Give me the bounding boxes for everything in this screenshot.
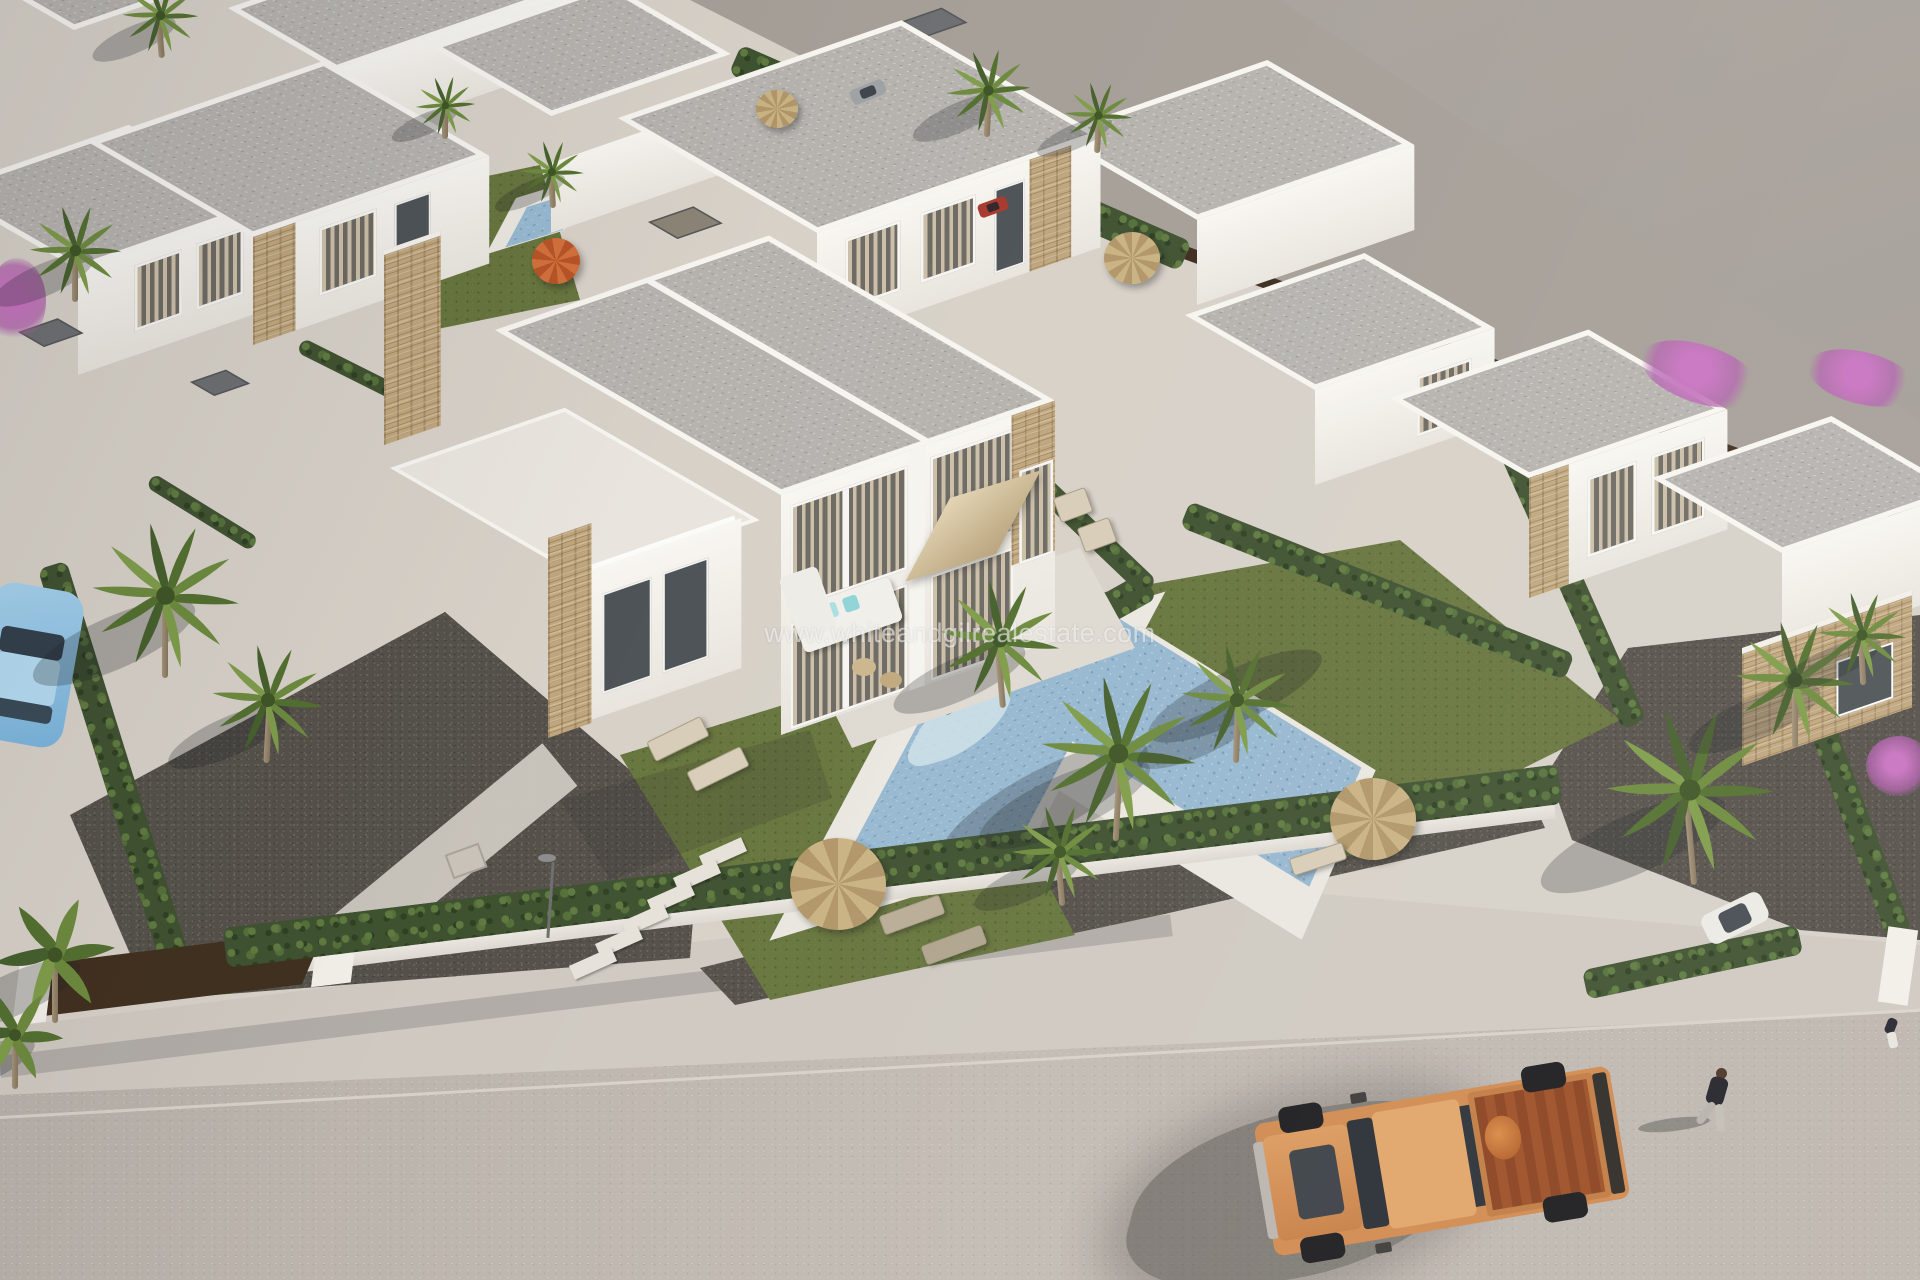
palm-crown <box>1056 73 1141 158</box>
stone-clad-pier <box>1030 145 1072 271</box>
car-glass <box>859 84 878 99</box>
palm-tree <box>113 0 208 63</box>
palm-tree <box>1000 792 1120 912</box>
palm-crown <box>512 132 592 212</box>
window <box>921 194 976 283</box>
rooftop-chimney <box>190 370 250 396</box>
palm-tree <box>18 193 133 308</box>
street-lamp-head <box>538 854 556 862</box>
truck-mirror <box>1350 1092 1367 1105</box>
wing-window <box>602 577 651 694</box>
pedestrian-leg <box>1715 1104 1726 1133</box>
aerial-render-scene: www.whiteandgilrealestate.com <box>0 0 1920 1280</box>
pouf-table <box>852 658 876 676</box>
hero-stone-pier <box>548 523 591 738</box>
palm-crown <box>113 0 208 63</box>
watermark: www.whiteandgilrealestate.com <box>764 618 1155 649</box>
window-mullion <box>842 489 849 589</box>
palm-tree <box>1807 580 1917 690</box>
truck-bed <box>1467 1072 1612 1217</box>
window <box>196 228 243 310</box>
palm-crown <box>408 68 483 143</box>
thatched-parasol <box>756 90 798 128</box>
window <box>319 208 377 296</box>
palm-tree <box>1056 73 1141 158</box>
palm-crown <box>198 630 338 770</box>
entry-door <box>995 179 1025 273</box>
pedestrian-leg <box>1886 1031 1898 1049</box>
pedestrian-small <box>1882 1018 1904 1054</box>
palm-tree <box>198 630 338 770</box>
hero-stone-chimney-wall <box>384 230 441 445</box>
pedestrian-leg <box>1695 1100 1717 1125</box>
car-glass <box>986 201 1000 213</box>
palm-crown <box>1167 630 1307 770</box>
cushion <box>841 594 860 613</box>
palm-tree <box>936 38 1041 143</box>
palm-tree <box>408 68 483 143</box>
palm-crown <box>0 975 75 1095</box>
window <box>1588 461 1637 558</box>
stone-clad-pier <box>1529 464 1569 598</box>
thatched-parasol <box>1104 232 1160 284</box>
pouf-table <box>880 672 902 688</box>
orange-parasol <box>532 238 580 284</box>
thatched-parasol <box>790 838 886 930</box>
palm-tree <box>512 132 592 212</box>
pedestrian <box>1698 1068 1742 1142</box>
palm-crown <box>936 38 1041 143</box>
banana-plant <box>0 975 75 1095</box>
wing-door <box>663 557 708 673</box>
palm-tree <box>1167 630 1307 770</box>
palm-crown <box>1000 792 1120 912</box>
window <box>135 249 182 331</box>
rooftop-chimney <box>648 206 723 239</box>
palm-crown <box>1807 580 1917 690</box>
stone-clad-pier <box>253 222 296 345</box>
palm-crown <box>18 193 133 308</box>
car-glass <box>1717 902 1754 935</box>
